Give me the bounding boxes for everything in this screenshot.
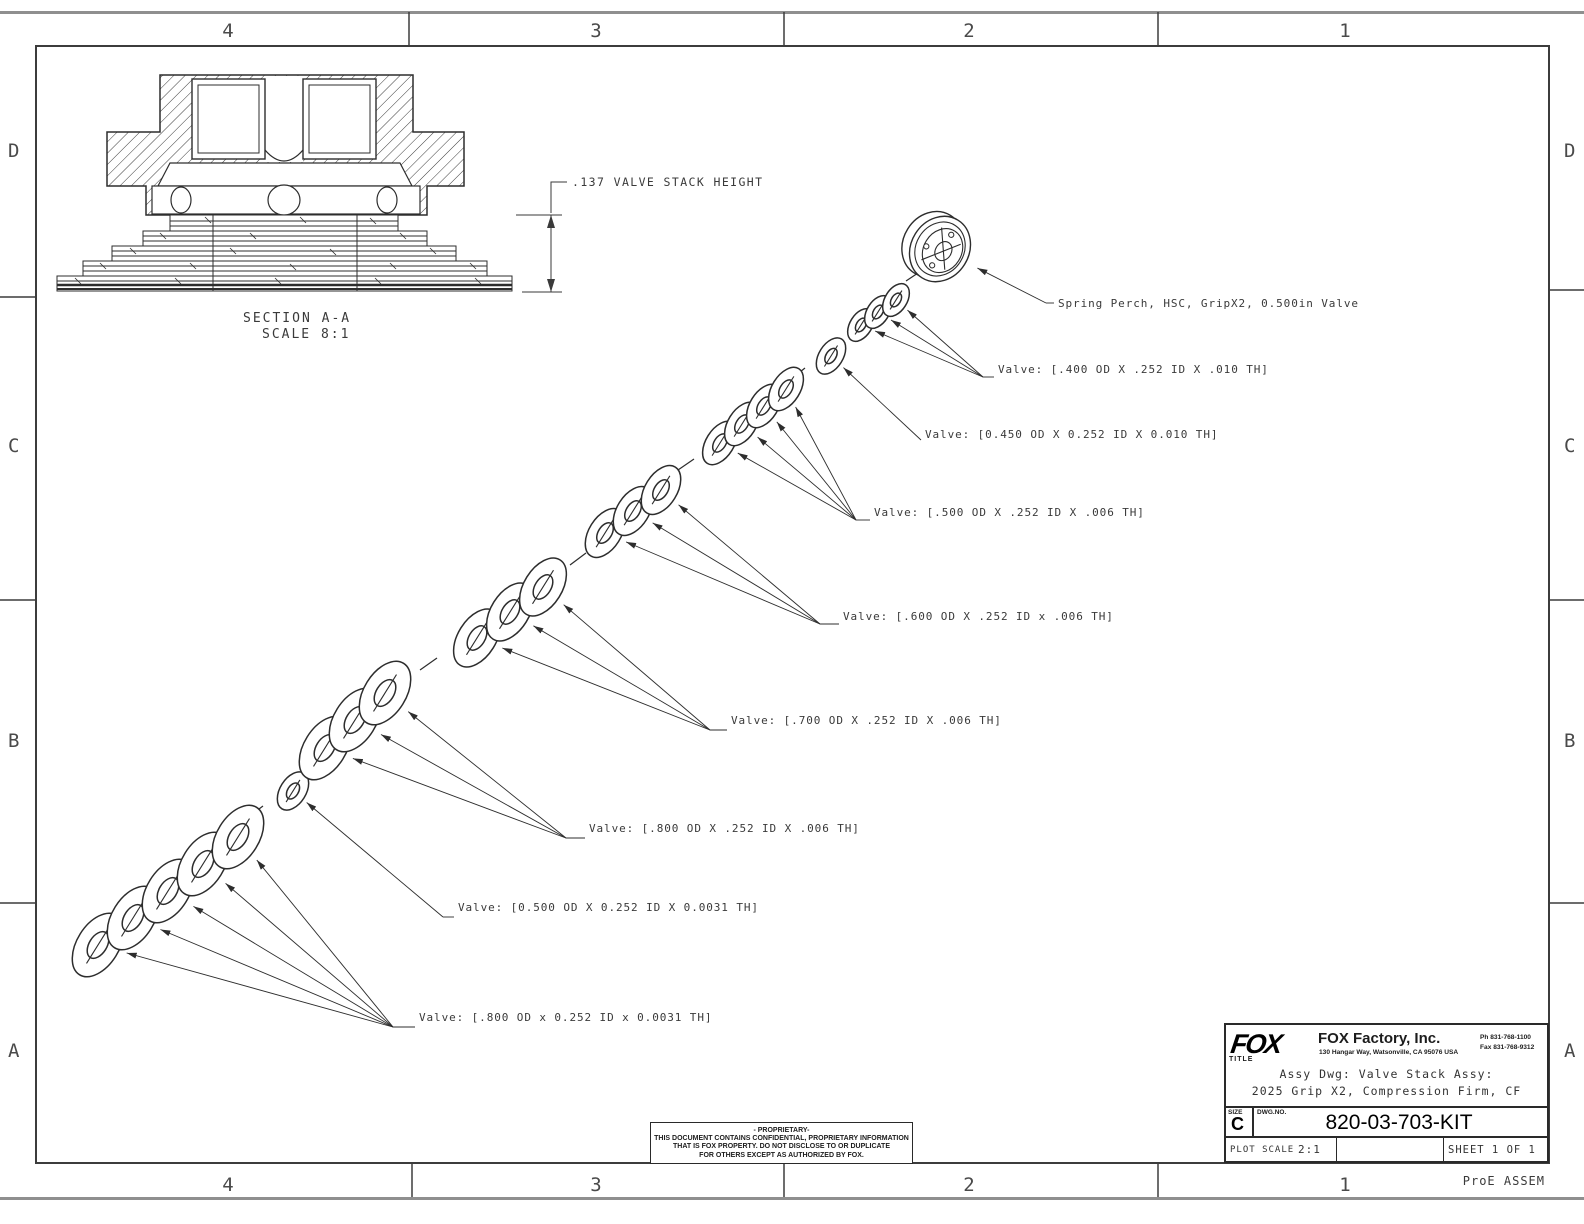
leader-line [843, 368, 921, 440]
title-block-bottom-row: PLOT SCALE 2:1 SHEET 1 OF 1 [1226, 1138, 1547, 1161]
size-value: C [1231, 1114, 1244, 1135]
zone-col-3-bottom: 3 [590, 1174, 601, 1196]
leader-line [679, 505, 820, 624]
leader-line [226, 883, 393, 1027]
leader-line [533, 626, 710, 730]
plot-scale-value: 2:1 [1298, 1143, 1321, 1156]
title-block: FOX FOX Factory, Inc. 130 Hangar Way, Wa… [1224, 1023, 1549, 1163]
leader-line [127, 953, 393, 1027]
section-window-right [303, 79, 376, 159]
valve-shim [810, 333, 852, 380]
company-name: FOX Factory, Inc. [1318, 1030, 1440, 1047]
leader-line [777, 422, 856, 520]
leader-line [160, 930, 393, 1027]
leader-line [891, 320, 983, 377]
dwg-number: 820-03-703-KIT [1254, 1111, 1544, 1135]
leader-line [307, 802, 443, 917]
section-window-left [192, 79, 265, 159]
zone-col-4-bottom: 4 [222, 1174, 233, 1196]
leader-line [408, 712, 566, 838]
axis-break-dash [420, 658, 437, 670]
spring-perch-label: Spring Perch, HSC, GripX2, 0.500in Valve [1058, 297, 1359, 310]
title-block-size-row: SIZE C DWG.NO. 820-03-703-KIT [1226, 1108, 1547, 1138]
divider [1443, 1138, 1444, 1161]
spring-perch-group: Spring Perch, HSC, GripX2, 0.500in Valve [890, 200, 1359, 310]
zone-row-C-left: C [8, 435, 19, 457]
zone-col-4-top: 4 [222, 20, 233, 42]
section-shim-stack [57, 215, 512, 291]
section-title: SECTION A-A [243, 311, 351, 326]
valve-400-010-label: Valve: [.400 OD X .252 ID X .010 TH] [998, 363, 1269, 376]
axis-break-dash [570, 553, 586, 565]
proprietary-notice: - PROPRIETARY- THIS DOCUMENT CONTAINS CO… [650, 1122, 913, 1164]
leader-line [381, 735, 566, 838]
leader-line [907, 310, 983, 377]
valve-700-006-label: Valve: [.700 OD X .252 ID X .006 TH] [731, 714, 1002, 727]
valve-450-010-group: Valve: [0.450 OD X 0.252 ID X 0.010 TH] [810, 333, 1218, 441]
valve-600-006-group: Valve: [.600 OD X .252 ID x .006 TH] [577, 459, 1114, 624]
leader-line [758, 437, 856, 520]
leader-line [977, 268, 1046, 303]
valve-500-006-label: Valve: [.500 OD X .252 ID X .006 TH] [874, 506, 1145, 519]
valve-800-006-label: Valve: [.800 OD X .252 ID X .006 TH] [589, 822, 860, 835]
zone-col-1-bottom: 1 [1339, 1174, 1350, 1196]
drawing-title-line1: Assy Dwg: Valve Stack Assy: [1226, 1067, 1547, 1081]
leader-line [257, 860, 393, 1027]
leader-line [353, 758, 566, 838]
proprietary-line: THIS DOCUMENT CONTAINS CONFIDENTIAL, PRO… [651, 1135, 912, 1143]
company-address: 130 Hangar Way, Watsonville, CA 95076 US… [1319, 1049, 1458, 1056]
zone-row-A-left: A [8, 1040, 19, 1062]
leader-line [502, 648, 710, 730]
drawing-title-line2: 2025 Grip X2, Compression Firm, CF [1226, 1084, 1547, 1098]
proprietary-line: THAT IS FOX PROPERTY. DO NOT DISCLOSE TO… [651, 1143, 912, 1151]
proprietary-line: FOR OTHERS EXCEPT AS AUTHORIZED BY FOX. [651, 1152, 912, 1160]
zone-row-D-right: D [1564, 140, 1575, 162]
zone-row-A-right: A [1564, 1040, 1575, 1062]
zone-col-2-top: 2 [963, 20, 974, 42]
company-phone: Ph 831-768-1100 [1480, 1034, 1531, 1041]
drawing-sheet: SECTION A-A SCALE 8:1 .137 VALVE STACK H… [0, 0, 1584, 1224]
leader-line [193, 906, 393, 1027]
stack-height-dimension-text: .137 VALVE STACK HEIGHT [572, 175, 763, 189]
zone-col-3-top: 3 [590, 20, 601, 42]
valve-500-0031-group: Valve: [0.500 OD X 0.252 ID X 0.0031 TH] [271, 766, 759, 917]
proprietary-line: - PROPRIETARY- [651, 1127, 912, 1135]
title-label: TITLE [1229, 1056, 1253, 1063]
zone-col-1-top: 1 [1339, 20, 1350, 42]
valve-450-010-label: Valve: [0.450 OD X 0.252 ID X 0.010 TH] [925, 428, 1218, 441]
valve-800-0031-label: Valve: [.800 OD x 0.252 ID x 0.0031 TH] [419, 1011, 712, 1024]
valve-700-006-group: Valve: [.700 OD X .252 ID X .006 TH] [444, 550, 1002, 730]
size-cell: SIZE C [1226, 1108, 1254, 1136]
valve-800-006-group: Valve: [.800 OD X .252 ID X .006 TH] [289, 652, 860, 838]
leader-line [564, 605, 710, 730]
plot-scale-label: PLOT SCALE [1230, 1145, 1294, 1155]
section-scale: SCALE 8:1 [262, 327, 350, 342]
leader-line [626, 542, 820, 624]
title-block-header: FOX FOX Factory, Inc. 130 Hangar Way, Wa… [1226, 1025, 1547, 1108]
leader-line [875, 331, 983, 377]
section-view: SECTION A-A SCALE 8:1 [57, 75, 512, 342]
cad-system-note: ProE ASSEM [1430, 1174, 1545, 1188]
axis-break-dash [678, 459, 694, 470]
zone-row-B-right: B [1564, 730, 1575, 752]
leader-line [653, 523, 820, 624]
zone-col-2-bottom: 2 [963, 1174, 974, 1196]
zone-row-C-right: C [1564, 435, 1575, 457]
company-fax: Fax 831-768-9312 [1480, 1044, 1534, 1051]
valve-600-006-label: Valve: [.600 OD X .252 ID x .006 TH] [843, 610, 1114, 623]
valve-400-010-group: Valve: [.400 OD X .252 ID X .010 TH] [842, 279, 1269, 377]
zone-row-B-left: B [8, 730, 19, 752]
stack-height-dimension [516, 182, 567, 292]
valve-500-0031-label: Valve: [0.500 OD X 0.252 ID X 0.0031 TH] [458, 901, 759, 914]
divider [1336, 1138, 1337, 1161]
spring-perch-part [890, 200, 983, 293]
sheet-count: SHEET 1 OF 1 [1448, 1144, 1536, 1156]
zone-row-D-left: D [8, 140, 19, 162]
